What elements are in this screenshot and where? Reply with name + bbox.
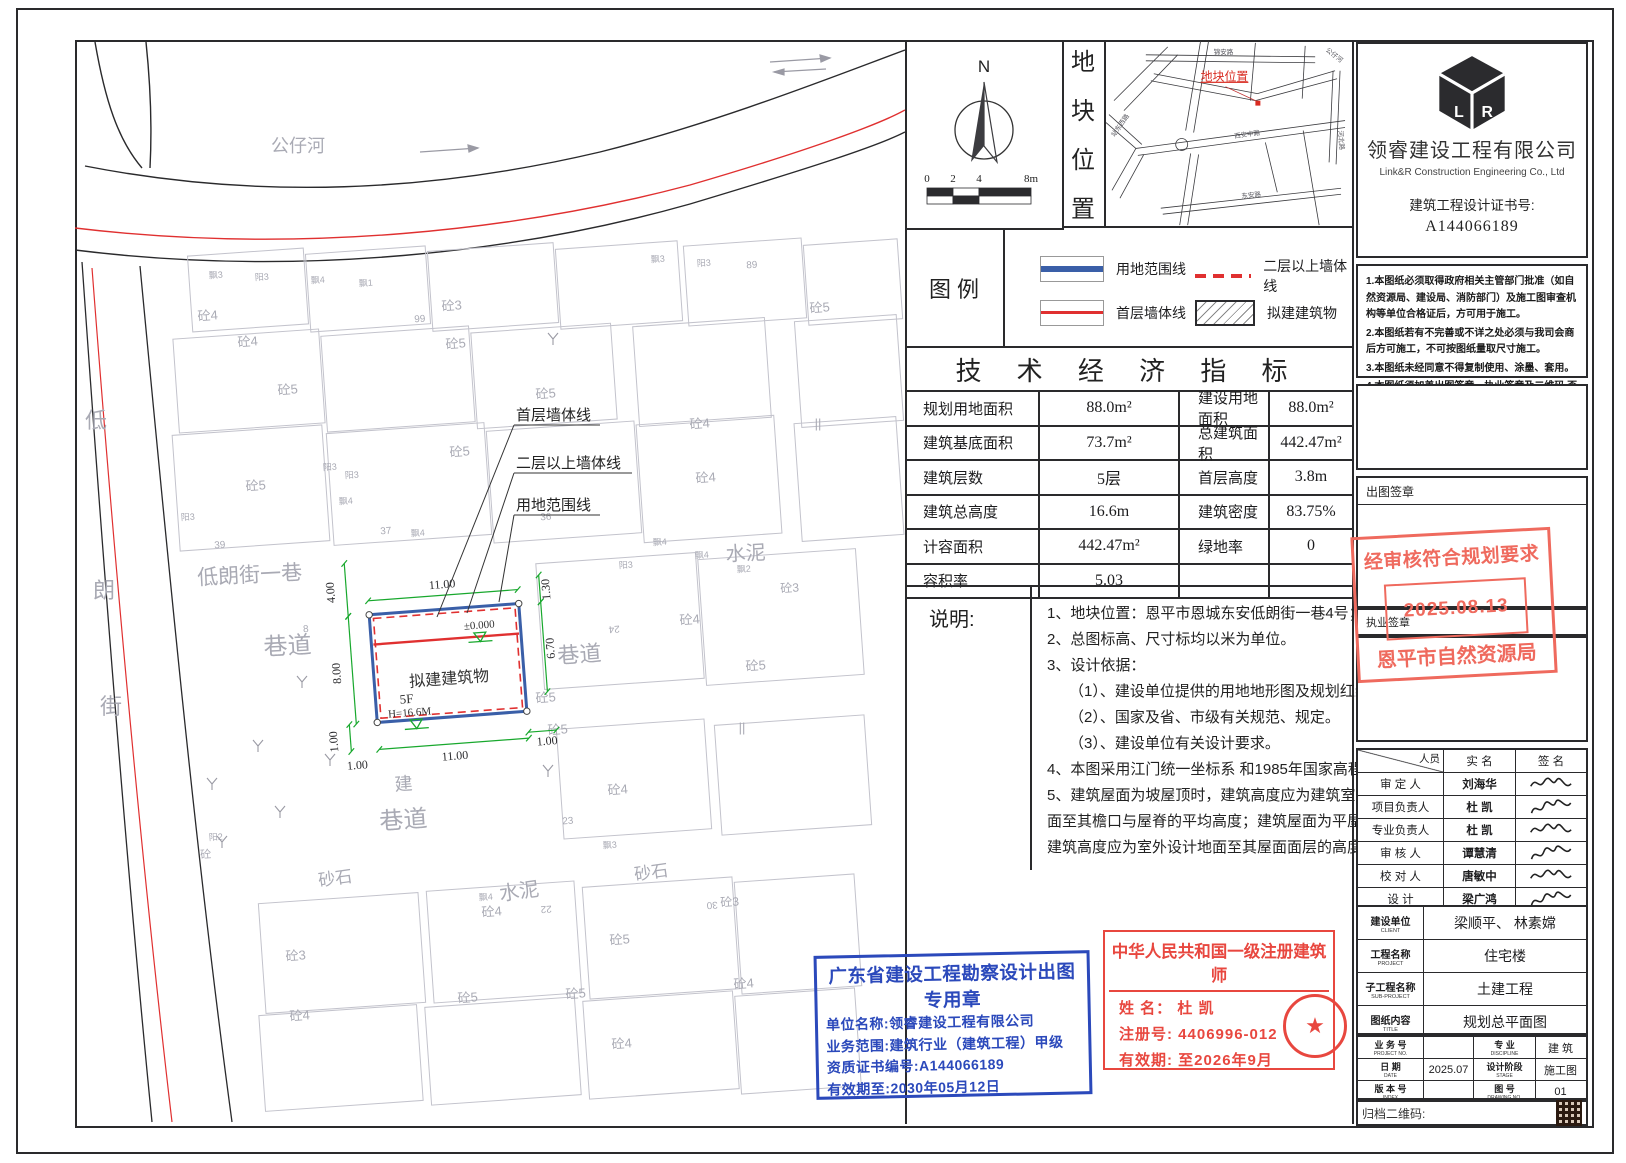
svg-text:L: L — [1454, 104, 1464, 121]
registered-architect-stamp: 中华人民共和国一级注册建筑师 姓 名： 杜 凯注册号: 4406996-012有… — [1103, 930, 1335, 1070]
legend-item: 首层墙体线 — [1040, 300, 1186, 326]
parcel — [582, 877, 739, 999]
map-road-label: 锦安路 — [1214, 47, 1234, 56]
map-road-label: 公仔河 — [1324, 45, 1345, 64]
personnel-signature — [1516, 819, 1586, 841]
parcel — [698, 549, 864, 686]
plan-area-label: 飘4 — [338, 496, 353, 507]
disclaimer-note: 2.本图纸若有不完善或不详之处必须与我司会商后方可施工，不可按图纸量取尺寸施工。 — [1366, 326, 1578, 359]
tree-icon — [297, 676, 307, 688]
parcel — [794, 315, 903, 428]
field-value: 规划总平面图 — [1424, 1006, 1586, 1038]
location-map: 锦安路公仔河站东西路西安中路东安路河北路 地块位置 — [1106, 40, 1352, 228]
grid-label-en: PROJECT NO. — [1374, 1051, 1408, 1057]
field-label-en: TITLE — [1383, 1027, 1398, 1033]
location-title-char: 置 — [1071, 189, 1095, 224]
personnel-role: 项目负责人 — [1358, 796, 1444, 818]
tech-value: 88.0m² — [1040, 392, 1180, 425]
tree-icon — [543, 765, 553, 777]
legend-item: 用地范围线 — [1040, 256, 1186, 282]
tech-label: 建筑总高度 — [905, 496, 1040, 529]
grid-label-en: DATE — [1384, 1073, 1397, 1079]
field-label-en: PROJECT — [1378, 961, 1404, 967]
qr-row: 归档二维码: — [1356, 1100, 1588, 1126]
notes-section: 说明: 1、地块位置：恩平市恩城东安低朗街一巷4号；2、总图标高、尺寸标均以米为… — [905, 585, 1352, 868]
archive-qr-code — [1556, 1100, 1582, 1126]
plan-area-label: 巷道 — [263, 632, 312, 661]
plan-area-label: 砼3 — [441, 297, 462, 313]
personnel-name: 刘海华 — [1444, 773, 1516, 795]
river-red-line — [75, 110, 905, 239]
plan-area-label: 朗 — [93, 578, 115, 603]
grid-value — [1424, 1037, 1474, 1058]
plan-area-label: 砼3 — [285, 947, 306, 963]
tree-icon — [325, 754, 335, 766]
plan-area-label: 阳3 — [254, 272, 269, 283]
parcel — [633, 318, 772, 427]
plan-area-label: 飘4 — [410, 528, 425, 539]
tech-value: 83.75% — [1270, 496, 1352, 529]
personnel-name: 杜 凯 — [1444, 796, 1516, 818]
plan-area-label: 飘4 — [652, 537, 667, 548]
personnel-role: 审 核 人 — [1358, 842, 1444, 864]
parcel — [259, 1005, 423, 1112]
tech-value: 16.6m — [1040, 496, 1180, 529]
personnel-row: 校 对 人唐敏中 — [1358, 864, 1586, 887]
parcel — [556, 719, 711, 839]
planning-approval-stamp: 经审核符合规划要求 2025.08.13 恩平市自然资源局 — [1350, 527, 1557, 683]
location-panel-title: 地块位置 — [1062, 40, 1106, 228]
dimension-text: 1.00 — [536, 733, 558, 749]
parcel — [427, 243, 558, 332]
plan-area-label: 砼5 — [809, 299, 830, 315]
plan-stamp-date: 2025.08.13 — [1384, 577, 1529, 640]
flow-arrow — [420, 55, 830, 152]
header-signature: 签 名 — [1516, 750, 1586, 772]
personnel-signature — [1516, 773, 1586, 795]
parcel — [486, 421, 641, 543]
plan-area-label: 砼4 — [689, 415, 710, 431]
plan-area-label: 建 — [394, 773, 413, 794]
plan-area-label: 砼4 — [607, 781, 628, 797]
parcel — [258, 893, 425, 1014]
tech-value: 442.47m² — [1270, 427, 1352, 460]
grid-value: 2025.07 — [1424, 1059, 1474, 1080]
plan-area-label: 低 — [85, 408, 107, 433]
plan-area-label: 砼4 — [733, 975, 754, 991]
plan-area-label: 砼4 — [197, 307, 218, 323]
blue-stamp-title: 广东省建设工程勘察设计出图专用章 — [825, 957, 1080, 1014]
building-level: ±0.000 — [463, 618, 495, 632]
plan-area-label: 砼4 — [695, 469, 716, 485]
field-label-zh: 工程名称 — [1371, 946, 1411, 961]
tech-value: 88.0m² — [1270, 392, 1352, 425]
plan-area-label: 砼5 — [565, 985, 586, 1001]
legend-title: 图 例 — [929, 272, 979, 304]
plan-area-label: 砼3 — [780, 580, 800, 595]
grid-value: 建 筑 — [1536, 1037, 1585, 1058]
field-label-en: SUB-PROJECT — [1371, 994, 1410, 1000]
personnel-row: 专业负责人杜 凯 — [1358, 818, 1586, 841]
plan-area-label: 砼5 — [745, 657, 766, 673]
building-floors: 5F — [399, 691, 414, 707]
title-block: 建设单位CLIENT梁顺平、 林素嫦工程名称PROJECT住宅楼子工程名称SUB… — [1356, 905, 1588, 1035]
field-label-en: CLIENT — [1381, 928, 1401, 934]
plan-area-label: 砼5 — [535, 689, 556, 705]
dimension-text: 4.00 — [323, 582, 339, 604]
personnel-row: 审 核 人谭慧清 — [1358, 841, 1586, 864]
plan-area-label: 水泥 — [725, 541, 766, 566]
plan-area-label: 阳3 — [180, 512, 195, 523]
personnel-name: 唐敏中 — [1444, 865, 1516, 887]
tech-label: 建筑密度 — [1180, 496, 1270, 529]
issue-seal-label: 出图签章 — [1358, 478, 1586, 505]
plan-area-label: 低朗街一巷 — [197, 561, 303, 589]
dimension-text: 11.00 — [441, 748, 469, 764]
empty-box — [1356, 384, 1588, 470]
field-value: 土建工程 — [1424, 973, 1586, 1005]
personnel-signature — [1516, 865, 1586, 887]
plan-area-label: 89 — [746, 260, 758, 272]
tech-row: 建筑基底面积73.7m²总建筑面积442.47m² — [905, 425, 1352, 460]
legend-item-label: 二层以上墙体线 — [1263, 256, 1352, 296]
tech-label: 首层高度 — [1180, 461, 1270, 494]
plan-area-label: 砼5 — [609, 931, 630, 947]
map-roads — [1106, 41, 1345, 225]
legend-swatch-red-dashed — [1195, 274, 1251, 278]
personnel-row: 审 定 人刘海华 — [1358, 772, 1586, 795]
plan-area-label: 砼4 — [611, 1035, 632, 1051]
plan-area-label: 巷道 — [379, 805, 429, 835]
legend-swatch-blue-solid — [1040, 256, 1104, 282]
legend-item: 拟建建筑物 — [1195, 300, 1337, 326]
plan-area-label: 37 — [380, 526, 392, 538]
scale-tick: 2 — [950, 173, 956, 185]
tree-icon — [253, 740, 263, 752]
plan-area-label: 砼4 — [679, 611, 700, 627]
company-name-en: Link&R Construction Engineering Co., Ltd — [1358, 167, 1586, 178]
plan-area-label: 砼5 — [277, 381, 298, 397]
signature-scribble-icon — [1530, 799, 1571, 813]
river-lines — [75, 42, 905, 262]
plan-area-label: 24 — [608, 623, 620, 635]
field-label-zh: 建设单位 — [1371, 913, 1411, 928]
tech-row: 规划用地面积88.0m²建设用地面积88.0m² — [905, 390, 1352, 425]
legend-items: 用地范围线二层以上墙体线首层墙体线拟建建筑物 — [1005, 228, 1352, 348]
company-logo-icon: L R — [1435, 54, 1509, 132]
notes-label: 说明: — [929, 603, 975, 632]
plan-area-label: 飘4 — [694, 550, 709, 561]
tech-value: 73.7m² — [1040, 427, 1180, 460]
plan-area-label: 巷道 — [557, 641, 603, 669]
scale-tick: 4 — [976, 173, 982, 185]
header-name: 实 名 — [1444, 750, 1516, 772]
dimension-text: 11.00 — [428, 576, 456, 592]
blue-design-stamp: 广东省建设工程勘察设计出图专用章 单位名称:领睿建设工程有限公司业务范围:建筑行… — [814, 950, 1093, 1100]
dimension-text: 6.70 — [542, 637, 558, 659]
field-label-zh: 图纸内容 — [1371, 1012, 1411, 1027]
personnel-row: 项目负责人杜 凯 — [1358, 795, 1586, 818]
legend-item: 二层以上墙体线 — [1195, 256, 1352, 296]
signature-scribble-icon — [1530, 845, 1571, 859]
tech-label: 建筑层数 — [905, 461, 1040, 494]
plan-area-label: 砼 — [200, 848, 212, 862]
scale-bar: 0248m — [924, 173, 1038, 204]
legend-item-label: 拟建建筑物 — [1267, 303, 1337, 323]
personnel-role: 审 定 人 — [1358, 773, 1444, 795]
dimension-text: 1.00 — [346, 757, 368, 773]
plan-area-label: 水泥 — [498, 877, 541, 905]
tech-value: 3.8m — [1270, 461, 1352, 494]
plan-area-label: 砼5 — [445, 335, 466, 351]
plan-area-label: 飘1 — [358, 278, 373, 289]
title-block-row: 图纸内容TITLE规划总平面图 — [1358, 1005, 1586, 1038]
scale-tick: 0 — [924, 173, 930, 185]
north-letter: N — [978, 57, 990, 76]
proposed-building-hatch — [369, 604, 527, 723]
plan-area-label: 飘3 — [602, 840, 617, 851]
grid-label-en: DISCIPLINE — [1491, 1051, 1519, 1057]
plan-area-label: 砼4 — [237, 333, 258, 349]
disclaimer-note: 3.本图纸未经同意不得复制使用、涂墨、套用。 — [1366, 361, 1578, 378]
personnel-header-row: 人员实 名签 名 — [1358, 750, 1586, 772]
tree-icon — [207, 778, 217, 790]
field-value: 住宅楼 — [1424, 940, 1586, 972]
title-block-row: 工程名称PROJECT住宅楼 — [1358, 939, 1586, 972]
location-title-char: 块 — [1071, 91, 1095, 126]
grid-label-en: STAGE — [1496, 1073, 1513, 1079]
parcel — [326, 423, 491, 546]
plan-area-label: 阳3 — [696, 258, 711, 269]
tech-label: 计容面积 — [905, 530, 1040, 563]
parcel — [683, 238, 806, 326]
tech-table-title: 技 术 经 济 指 标 — [955, 351, 1301, 388]
signature-scribble-icon — [1531, 868, 1572, 882]
plan-area-label: || — [739, 720, 746, 735]
personnel-role: 专业负责人 — [1358, 819, 1444, 841]
tech-label: 建设用地面积 — [1180, 392, 1270, 425]
legend-swatch-red-solid — [1040, 300, 1104, 326]
plan-area-label: || — [815, 416, 822, 431]
grid-value — [1424, 1081, 1474, 1102]
tech-row: 建筑层数5层首层高度3.8m — [905, 459, 1352, 494]
callout-label: 用地范围线 — [516, 497, 591, 514]
plan-area-label: 39 — [214, 540, 226, 552]
title-block-grid: 业 务 号PROJECT NO.专 业DISCIPLINE建 筑日 期DATE2… — [1356, 1035, 1588, 1100]
personnel-table: 人员实 名签 名审 定 人刘海华项目负责人杜 凯专业负责人杜 凯审 核 人谭慧清… — [1356, 748, 1588, 912]
qr-label: 归档二维码: — [1362, 1105, 1425, 1122]
tree-icon — [548, 333, 558, 345]
grid-label-zh: 日 期 — [1380, 1060, 1401, 1073]
header-personnel: 人员 — [1419, 751, 1440, 766]
dimension-text: 8.00 — [329, 662, 345, 684]
plan-stamp-line2: 恩平市自然资源局 — [1359, 635, 1554, 674]
grid-label-zh: 设计阶段 — [1486, 1060, 1522, 1073]
field-value: 梁顺平、 林素嫦 — [1424, 907, 1586, 939]
cert-number: A144066189 — [1358, 218, 1586, 236]
company-name: 领睿建设工程有限公司 — [1358, 134, 1586, 163]
tech-value: 0 — [1270, 530, 1352, 563]
tech-row: 计容面积442.47m²绿地率0 — [905, 528, 1352, 563]
legend-swatch-hatch — [1195, 300, 1255, 326]
plan-area-label: 飘4 — [478, 892, 493, 903]
title-grid-row: 日 期DATE2025.07设计阶段STAGE施工图 — [1358, 1058, 1586, 1080]
callout-label: 首层墙体线 — [516, 407, 591, 424]
parcel-outlines — [172, 238, 904, 1111]
disclaimer-notes-box: 1.本图纸必须取得政府相关主管部门批准（如自然资源局、建设局、消防部门）及施工图… — [1356, 264, 1588, 378]
plan-area-label: 飘2 — [736, 564, 751, 575]
tree-icon — [275, 806, 285, 818]
personnel-role: 校 对 人 — [1358, 865, 1444, 887]
plan-area-label: 22 — [540, 903, 552, 915]
plan-area-label: 30 — [706, 899, 718, 911]
signature-scribble-icon — [1531, 822, 1572, 836]
plan-area-label: 街 — [100, 694, 122, 719]
callout-label: 二层以上墙体线 — [516, 455, 621, 472]
personnel-signature — [1516, 842, 1586, 864]
plan-area-label: 阳3 — [618, 560, 633, 571]
plan-area-label: 砼4 — [481, 903, 502, 919]
callout-leaders: 首层墙体线二层以上墙体线用地范围线 — [437, 407, 632, 617]
grid-label-zh: 专 业 — [1494, 1038, 1515, 1051]
parcel — [583, 991, 739, 1099]
north-arrow: N 0248m — [905, 40, 1062, 228]
plan-area-label: 砼5 — [535, 385, 556, 401]
plan-area-label: 99 — [414, 314, 426, 326]
plan-area-label: 8 — [303, 624, 310, 635]
dimension-text: 1.00 — [326, 731, 342, 753]
tech-table-title-row: 技 术 经 济 指 标 — [905, 348, 1352, 390]
plan-area-label: 飘3 — [208, 270, 223, 281]
location-title-char: 地 — [1071, 42, 1095, 77]
legend-item-label: 用地范围线 — [1116, 259, 1186, 279]
disclaimer-note: 1.本图纸必须取得政府相关主管部门批准（如自然资源局、建设局、消防部门）及施工图… — [1366, 274, 1578, 324]
tech-value: 442.47m² — [1040, 530, 1180, 563]
title-grid-row: 业 务 号PROJECT NO.专 业DISCIPLINE建 筑 — [1358, 1037, 1586, 1058]
scale-tick: 8m — [1024, 173, 1039, 185]
personnel-name: 杜 凯 — [1444, 819, 1516, 841]
company-block: L R 领睿建设工程有限公司 Link&R Construction Engin… — [1356, 42, 1588, 258]
grid-label-zh: 版 本 号 — [1374, 1082, 1406, 1095]
cert-label: 建筑工程设计证书号: — [1358, 194, 1586, 214]
architect-round-seal-icon: ★ — [1283, 994, 1347, 1058]
grid-label-zh: 业 务 号 — [1374, 1038, 1406, 1051]
plan-area-label: 砂石 — [633, 861, 669, 885]
title-block-row: 建设单位CLIENT梁顺平、 林素嫦 — [1358, 907, 1586, 939]
tech-label: 总建筑面积 — [1180, 427, 1270, 460]
plan-area-label: 砂石 — [317, 867, 353, 891]
tech-table: 规划用地面积88.0m²建设用地面积88.0m²建筑基底面积73.7m²总建筑面… — [905, 390, 1352, 599]
legend-title-cell: 图 例 — [905, 228, 1005, 348]
map-site-marker — [1255, 101, 1260, 106]
personnel-signature — [1516, 796, 1586, 818]
grid-value: 施工图 — [1536, 1059, 1585, 1080]
grid-label-zh: 图 号 — [1494, 1082, 1515, 1095]
plan-area-label: 砼5 — [449, 443, 470, 459]
field-label-zh: 子工程名称 — [1366, 979, 1416, 994]
plan-area-label: 飘3 — [650, 254, 665, 265]
tech-label: 规划用地面积 — [905, 392, 1040, 425]
dimension-text: 1.30 — [538, 578, 554, 600]
plan-area-label: 砼5 — [245, 477, 266, 493]
map-marker-label: 地块位置 — [1201, 69, 1249, 84]
tech-row: 建筑总高度16.6m建筑密度83.75% — [905, 494, 1352, 529]
plan-area-label: 23 — [562, 816, 574, 828]
tech-label: 建筑基底面积 — [905, 427, 1040, 460]
plan-area-label: 砼4 — [289, 1007, 310, 1023]
plan-area-label: 飘4 — [310, 275, 325, 286]
map-road-label: 东安路 — [1241, 189, 1262, 200]
title-grid-row: 版 本 号INDEX图 号DRAWING NO.01 — [1358, 1080, 1586, 1102]
plan-area-label: 阳3 — [322, 462, 337, 473]
signature-scribble-icon — [1531, 776, 1572, 790]
plan-area-label: 砼5 — [457, 989, 478, 1005]
site-plan: 公仔河低朗街低朗街一巷水泥水泥砂石砂石巷道巷道建巷道飘3阳3飘4飘1飘3阳389… — [75, 40, 905, 1124]
plan-stamp-line1: 经审核符合规划要求 — [1354, 538, 1549, 575]
tech-label: 绿地率 — [1180, 530, 1270, 563]
tech-value: 5层 — [1040, 461, 1180, 494]
title-block-row: 子工程名称SUB-PROJECT土建工程 — [1358, 972, 1586, 1005]
parcel — [794, 417, 904, 542]
legend-item-label: 首层墙体线 — [1116, 303, 1186, 323]
svg-text:R: R — [1481, 104, 1493, 121]
map-road-label: 西安中路 — [1234, 128, 1261, 141]
location-title-char: 位 — [1071, 140, 1095, 175]
grid-value: 01 — [1536, 1081, 1585, 1102]
parcel — [425, 997, 581, 1105]
arch-stamp-title: 中华人民共和国一级注册建筑师 — [1109, 932, 1329, 992]
plan-area-label: 公仔河 — [271, 136, 325, 156]
personnel-name: 谭慧清 — [1444, 842, 1516, 864]
plan-area-label: 砼3 — [720, 894, 740, 909]
plan-area-label: 阳3 — [344, 470, 359, 481]
map-road-label: 河北路 — [1336, 130, 1347, 151]
signature-scribble-icon — [1530, 891, 1571, 905]
